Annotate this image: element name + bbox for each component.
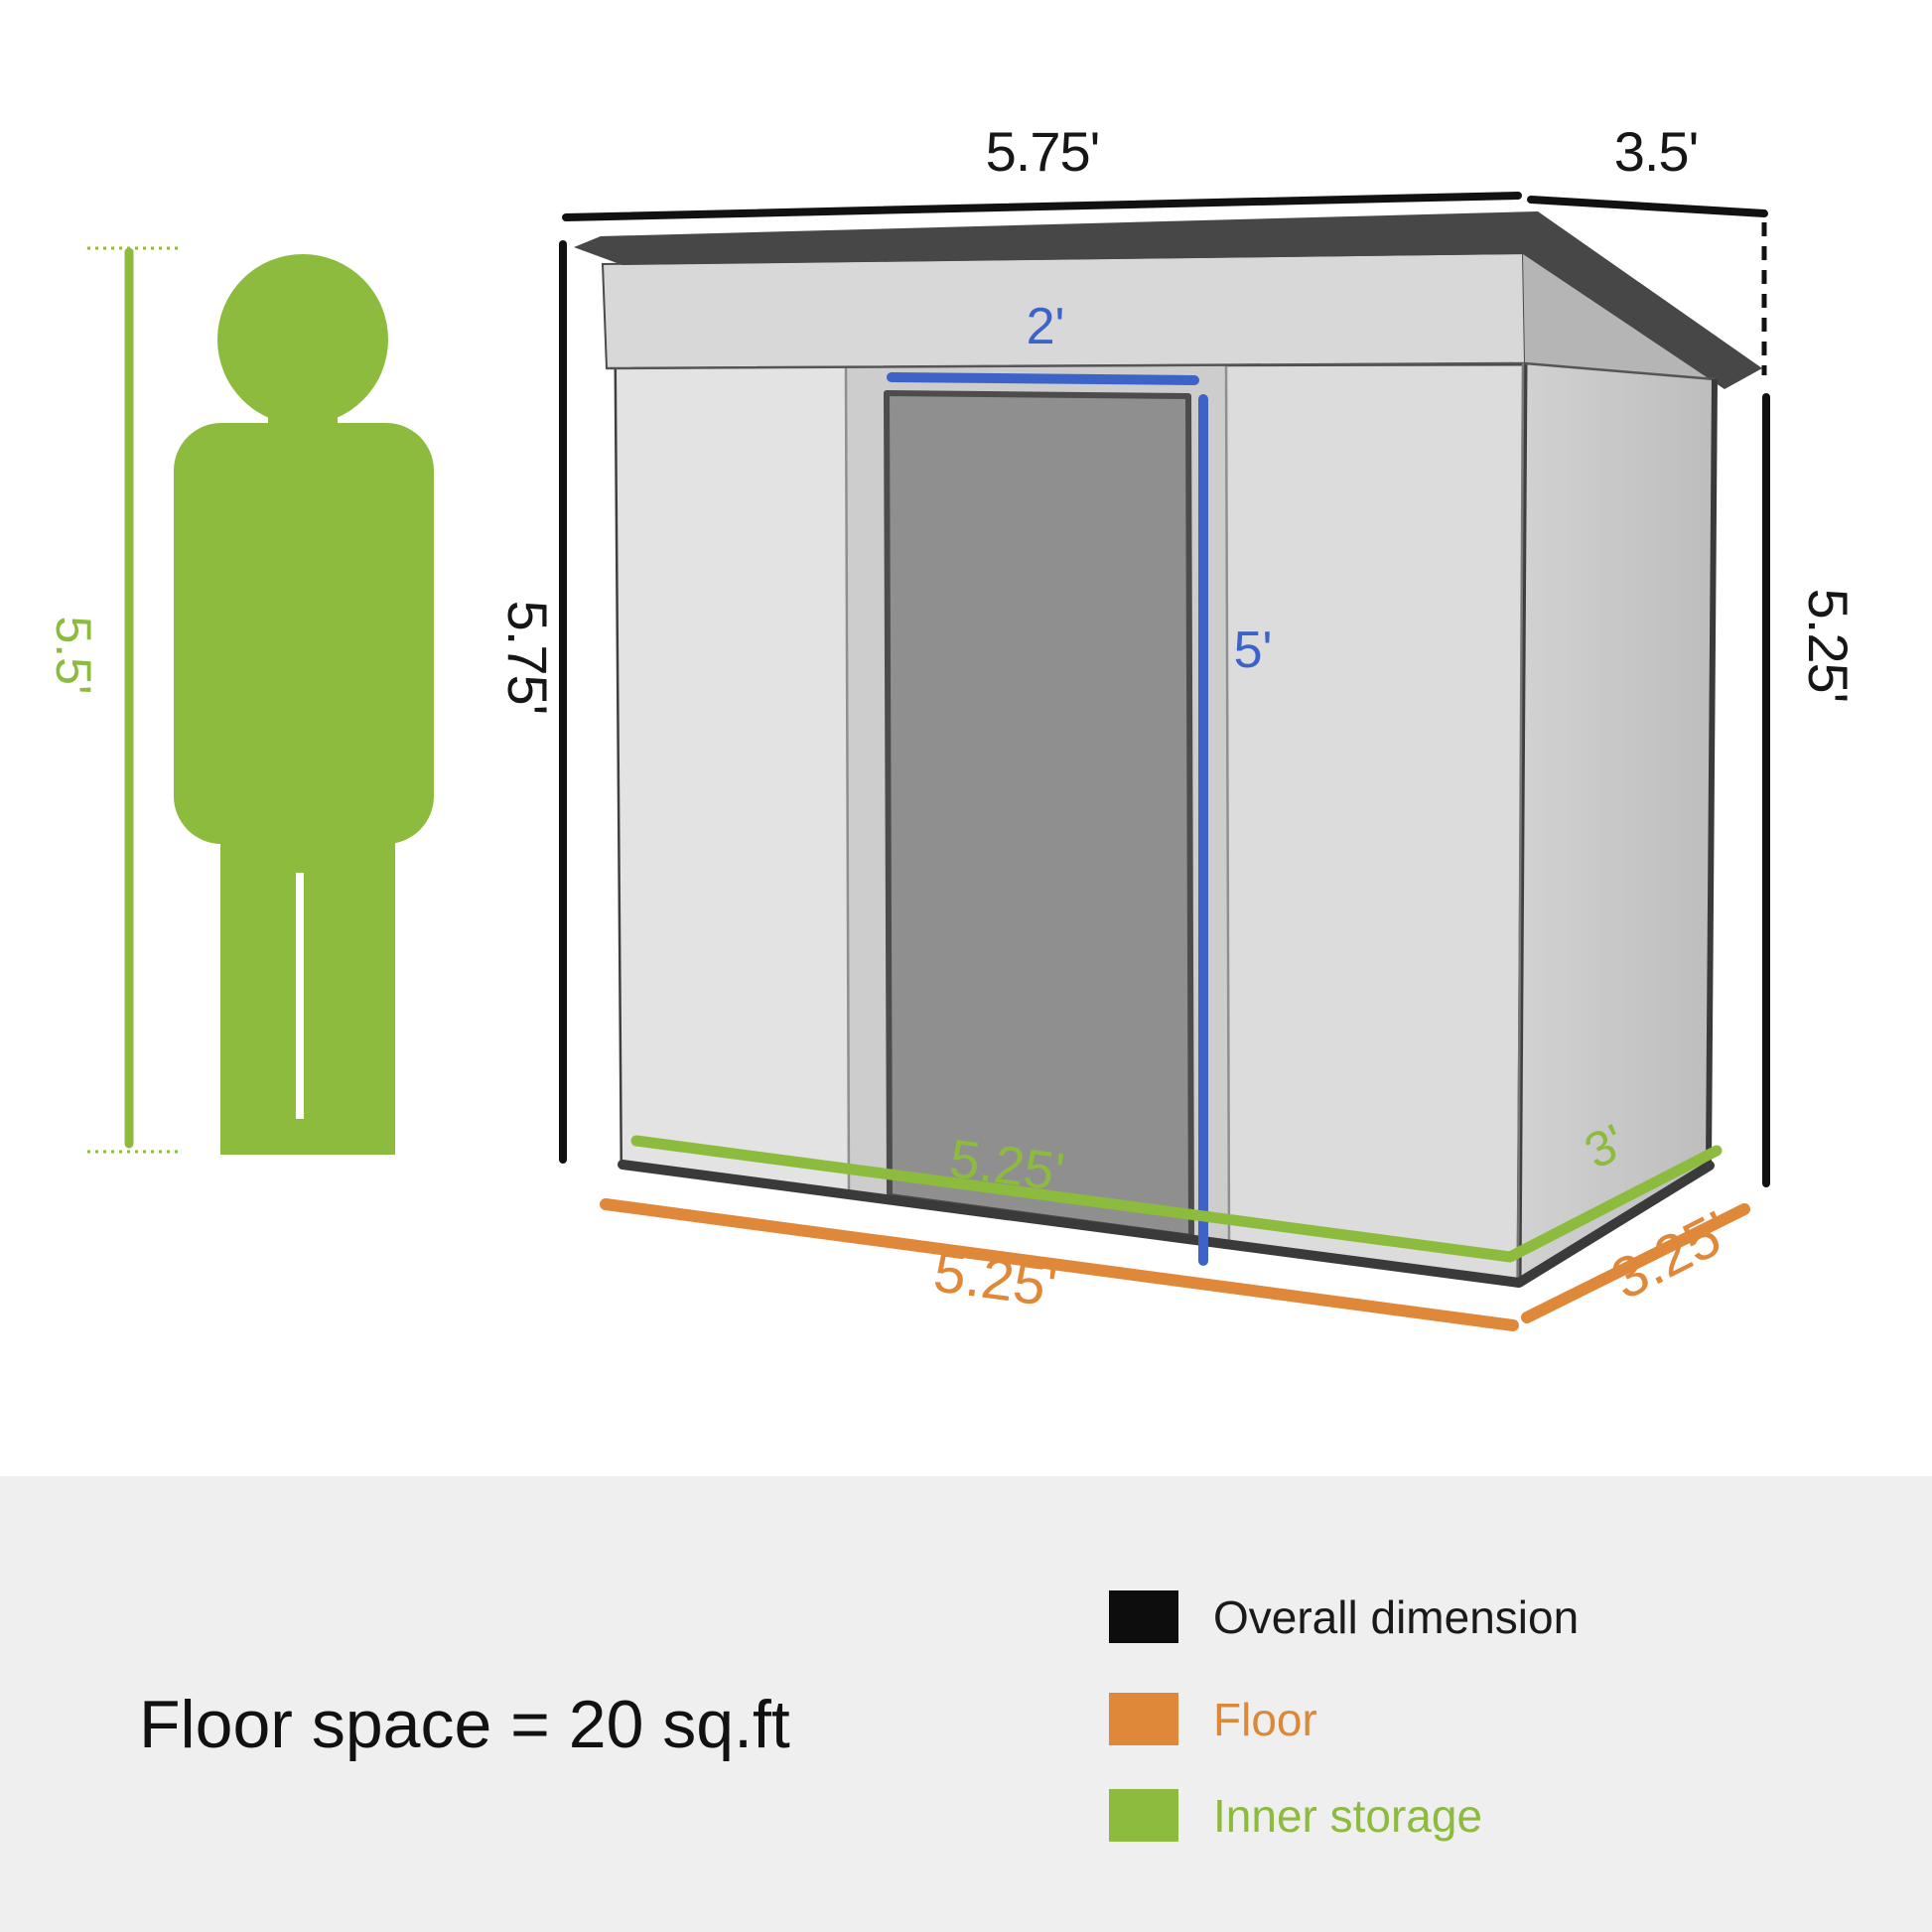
door-width-line <box>892 377 1194 380</box>
legend-swatch-inner <box>1109 1789 1178 1842</box>
overall-depth-line <box>1531 200 1764 213</box>
shed-door <box>887 393 1191 1237</box>
door-width-label: 2' <box>1027 298 1065 355</box>
legend-label-overall: Overall dimension <box>1213 1591 1579 1643</box>
overall-width-line <box>566 196 1518 217</box>
person-torso <box>174 423 434 844</box>
diagram-canvas: 5.5' 2' 5' <box>0 0 1932 1932</box>
overall-depth-label: 3.5' <box>1614 120 1699 183</box>
legend-label-floor: Floor <box>1213 1694 1317 1745</box>
person-silhouette <box>174 254 434 1155</box>
door-height-label: 5' <box>1234 621 1273 679</box>
shed-front-left-panel <box>617 364 849 1192</box>
person-height-label: 5.5' <box>46 616 101 694</box>
shed-illustration <box>574 211 1762 1283</box>
overall-height-left-label: 5.75' <box>496 601 559 715</box>
floor-width-label: 5.25' <box>930 1239 1060 1319</box>
person-leg-divider <box>296 873 304 1119</box>
overall-height-right-label: 5.25' <box>1797 589 1860 703</box>
person-height-dimension <box>87 248 182 1152</box>
person-legs <box>220 800 395 1155</box>
shed-dimension-diagram: 5.5' 2' 5' <box>0 0 1932 1932</box>
legend-label-inner: Inner storage <box>1213 1790 1482 1842</box>
floor-space-text: Floor space = 20 sq.ft <box>139 1687 790 1762</box>
legend-swatch-floor <box>1109 1693 1178 1745</box>
legend-swatch-overall <box>1109 1590 1178 1643</box>
overall-width-label: 5.75' <box>986 120 1100 183</box>
